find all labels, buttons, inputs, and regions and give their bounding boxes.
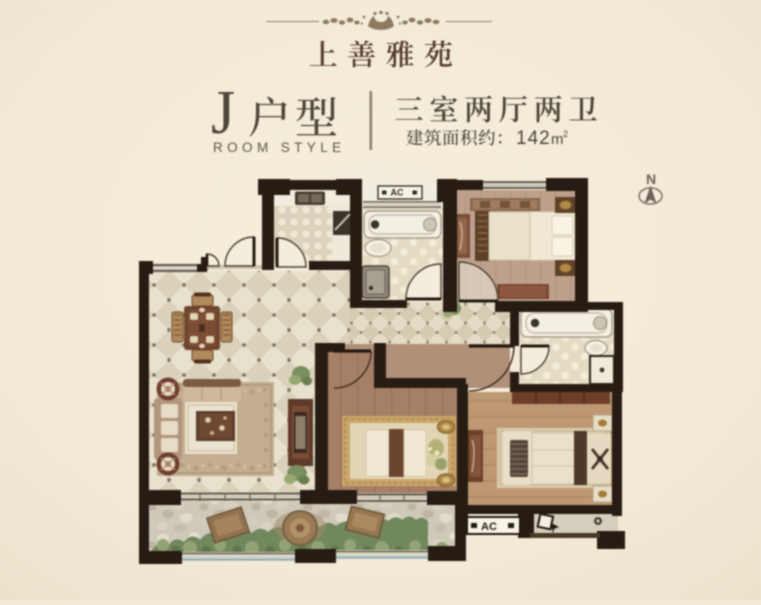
svg-text:J: J bbox=[211, 79, 235, 147]
svg-text:142: 142 bbox=[516, 128, 551, 149]
svg-text:m: m bbox=[551, 131, 564, 148]
svg-text:N: N bbox=[646, 171, 656, 187]
svg-text:AC: AC bbox=[391, 188, 404, 198]
svg-text:ROOM STYLE: ROOM STYLE bbox=[213, 140, 346, 155]
svg-text:2: 2 bbox=[563, 129, 568, 139]
svg-text:AC: AC bbox=[481, 521, 497, 533]
